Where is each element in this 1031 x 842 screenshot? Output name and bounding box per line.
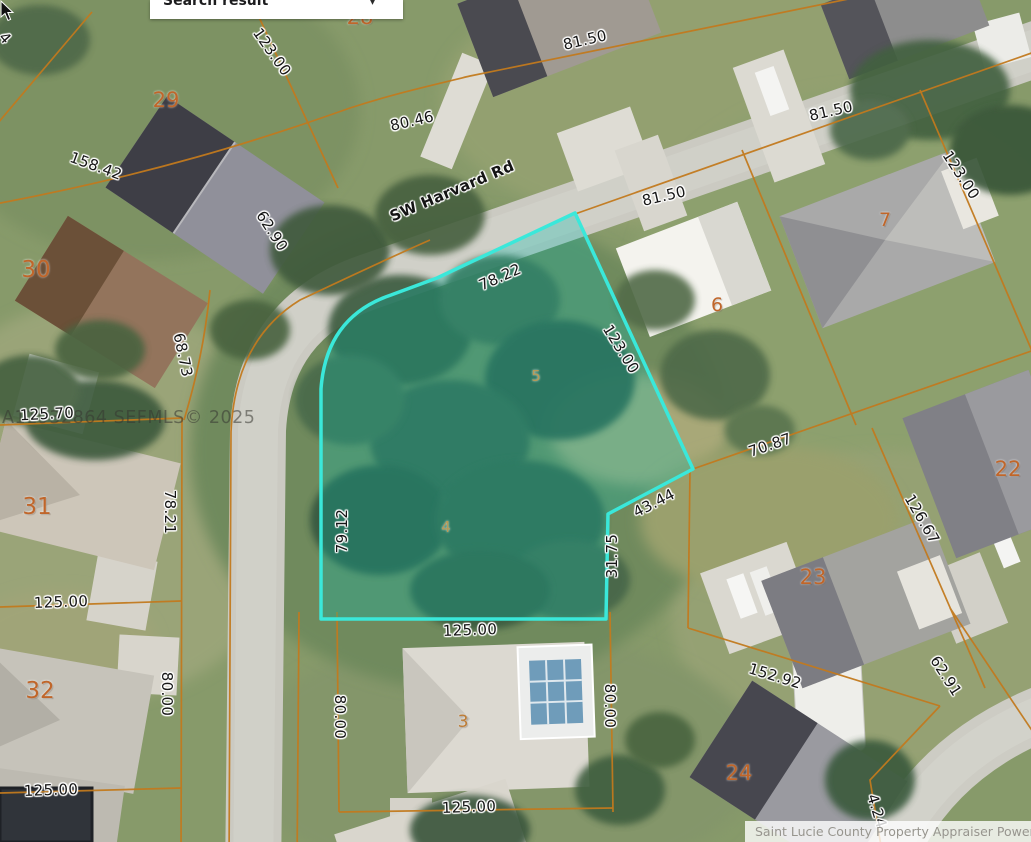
lot-number-label: 22 xyxy=(995,457,1022,481)
dimension-label: 31.75 xyxy=(603,534,621,578)
lot-number-label: 23 xyxy=(800,565,827,589)
search-result-dropdown[interactable]: Search result ▾ xyxy=(150,0,403,19)
lot-number-label: 32 xyxy=(25,678,54,704)
dimension-label: 125.00 xyxy=(442,797,497,817)
dimension-label: 125.00 xyxy=(34,592,89,612)
attribution-text: Saint Lucie County Property Appraiser Po… xyxy=(755,824,1031,839)
search-result-dropdown-label: Search result xyxy=(163,0,268,9)
dimension-label: 125.70 xyxy=(19,404,74,425)
lot-number-label: 4 xyxy=(441,518,451,536)
dimension-label: 125.00 xyxy=(24,780,79,800)
lot-number-label: 29 xyxy=(153,88,180,112)
dimension-label: 78.21 xyxy=(161,490,179,534)
dimension-label: 80.00 xyxy=(158,672,176,716)
lot-number-label: 7 xyxy=(879,209,891,231)
chevron-down-icon: ▾ xyxy=(370,0,375,8)
lot-number-label: 31 xyxy=(22,494,51,520)
lot-number-label: 24 xyxy=(726,761,753,785)
dimension-label: 125.00 xyxy=(443,620,498,640)
lot-number-label: 3 xyxy=(458,712,469,732)
map-canvas[interactable]: 4 123.00 81.50 80.46 81.50 123.00 158.42… xyxy=(0,0,1031,842)
lot-number-label: 30 xyxy=(21,257,50,283)
attribution-bar: Saint Lucie County Property Appraiser Po… xyxy=(745,821,1031,842)
dimension-label: 80.00 xyxy=(601,684,619,728)
lot-number-label: 5 xyxy=(531,367,541,385)
house-roof xyxy=(403,642,597,794)
lot-number-label: 6 xyxy=(711,294,723,316)
mouse-cursor-icon xyxy=(0,0,16,22)
dimension-label: 80.00 xyxy=(331,695,349,739)
dimension-label: 79.12 xyxy=(333,509,351,553)
